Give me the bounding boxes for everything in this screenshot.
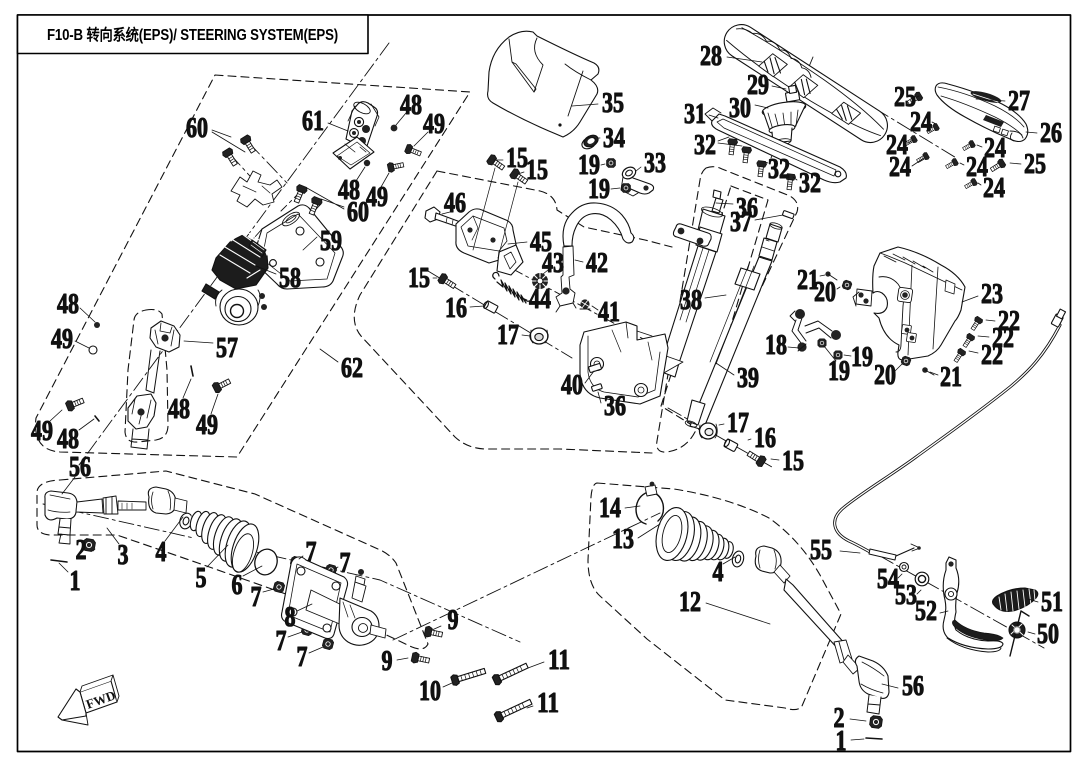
svg-text:7: 7	[306, 536, 317, 568]
svg-text:48: 48	[57, 288, 79, 320]
svg-text:17: 17	[497, 319, 519, 351]
svg-text:7: 7	[276, 625, 287, 657]
svg-text:19: 19	[851, 341, 873, 373]
svg-text:27: 27	[1008, 85, 1030, 117]
svg-text:35: 35	[602, 87, 624, 119]
svg-text:61: 61	[302, 105, 324, 137]
svg-text:52: 52	[915, 595, 937, 627]
svg-text:33: 33	[644, 147, 666, 179]
svg-text:32: 32	[768, 153, 790, 185]
svg-text:19: 19	[588, 173, 610, 205]
svg-text:20: 20	[874, 359, 896, 391]
svg-text:9: 9	[382, 645, 393, 677]
svg-text:56: 56	[902, 670, 924, 702]
svg-text:11: 11	[537, 687, 559, 719]
svg-text:51: 51	[1041, 586, 1063, 618]
svg-text:49: 49	[366, 181, 388, 213]
svg-text:48: 48	[168, 393, 190, 425]
svg-text:3: 3	[118, 539, 129, 571]
svg-text:18: 18	[765, 329, 787, 361]
svg-text:4: 4	[156, 536, 167, 568]
svg-text:57: 57	[216, 332, 238, 364]
svg-text:22: 22	[981, 339, 1003, 371]
svg-text:49: 49	[423, 108, 445, 140]
svg-text:26: 26	[1040, 117, 1062, 149]
svg-text:30: 30	[729, 92, 751, 124]
svg-text:49: 49	[196, 409, 218, 441]
svg-text:32: 32	[694, 129, 716, 161]
svg-text:11: 11	[548, 644, 570, 676]
svg-text:48: 48	[400, 89, 422, 121]
svg-text:24: 24	[910, 106, 932, 138]
svg-text:55: 55	[810, 534, 832, 566]
svg-text:13: 13	[612, 523, 634, 555]
svg-text:14: 14	[599, 492, 621, 524]
svg-text:37: 37	[730, 206, 752, 238]
svg-text:15: 15	[506, 142, 528, 174]
svg-text:5: 5	[196, 562, 207, 594]
svg-text:53: 53	[895, 579, 917, 611]
svg-text:15: 15	[408, 262, 430, 294]
svg-text:1: 1	[70, 565, 81, 597]
svg-text:7: 7	[297, 641, 308, 673]
svg-text:49: 49	[51, 323, 73, 355]
svg-text:36: 36	[604, 390, 626, 422]
svg-text:16: 16	[754, 422, 776, 454]
svg-text:31: 31	[684, 98, 706, 130]
svg-text:7: 7	[251, 581, 262, 613]
svg-text:7: 7	[340, 547, 351, 579]
svg-text:28: 28	[700, 40, 722, 72]
svg-text:58: 58	[279, 262, 301, 294]
svg-text:1: 1	[836, 725, 847, 757]
svg-text:50: 50	[1037, 618, 1059, 650]
svg-text:49: 49	[31, 415, 53, 447]
svg-text:32: 32	[799, 167, 821, 199]
svg-text:56: 56	[69, 451, 91, 483]
svg-text:20: 20	[814, 276, 836, 308]
svg-text:25: 25	[1024, 148, 1046, 180]
svg-text:15: 15	[526, 154, 548, 186]
svg-text:40: 40	[561, 369, 583, 401]
svg-text:12: 12	[679, 586, 701, 618]
svg-text:6: 6	[232, 569, 243, 601]
svg-text:41: 41	[598, 296, 620, 328]
svg-text:43: 43	[542, 247, 564, 279]
svg-text:2: 2	[76, 534, 87, 566]
svg-text:60: 60	[347, 196, 369, 228]
svg-text:46: 46	[444, 187, 466, 219]
svg-text:17: 17	[727, 407, 749, 439]
svg-text:39: 39	[737, 362, 759, 394]
svg-text:9: 9	[448, 604, 459, 636]
svg-text:59: 59	[320, 225, 342, 257]
svg-text:62: 62	[341, 352, 363, 384]
svg-text:24: 24	[889, 151, 911, 183]
svg-text:15: 15	[782, 445, 804, 477]
svg-text:24: 24	[983, 172, 1005, 204]
svg-text:38: 38	[680, 284, 702, 316]
svg-text:10: 10	[419, 675, 441, 707]
svg-text:16: 16	[445, 292, 467, 324]
svg-text:44: 44	[529, 283, 551, 315]
svg-text:60: 60	[186, 112, 208, 144]
svg-text:F10-B 转向系统(EPS)/ STEERING SYST: F10-B 转向系统(EPS)/ STEERING SYSTEM(EPS)	[47, 25, 338, 44]
svg-text:19: 19	[828, 355, 850, 387]
svg-text:4: 4	[713, 556, 724, 588]
svg-text:21: 21	[940, 361, 962, 393]
svg-text:42: 42	[586, 247, 608, 279]
svg-text:34: 34	[603, 122, 625, 154]
